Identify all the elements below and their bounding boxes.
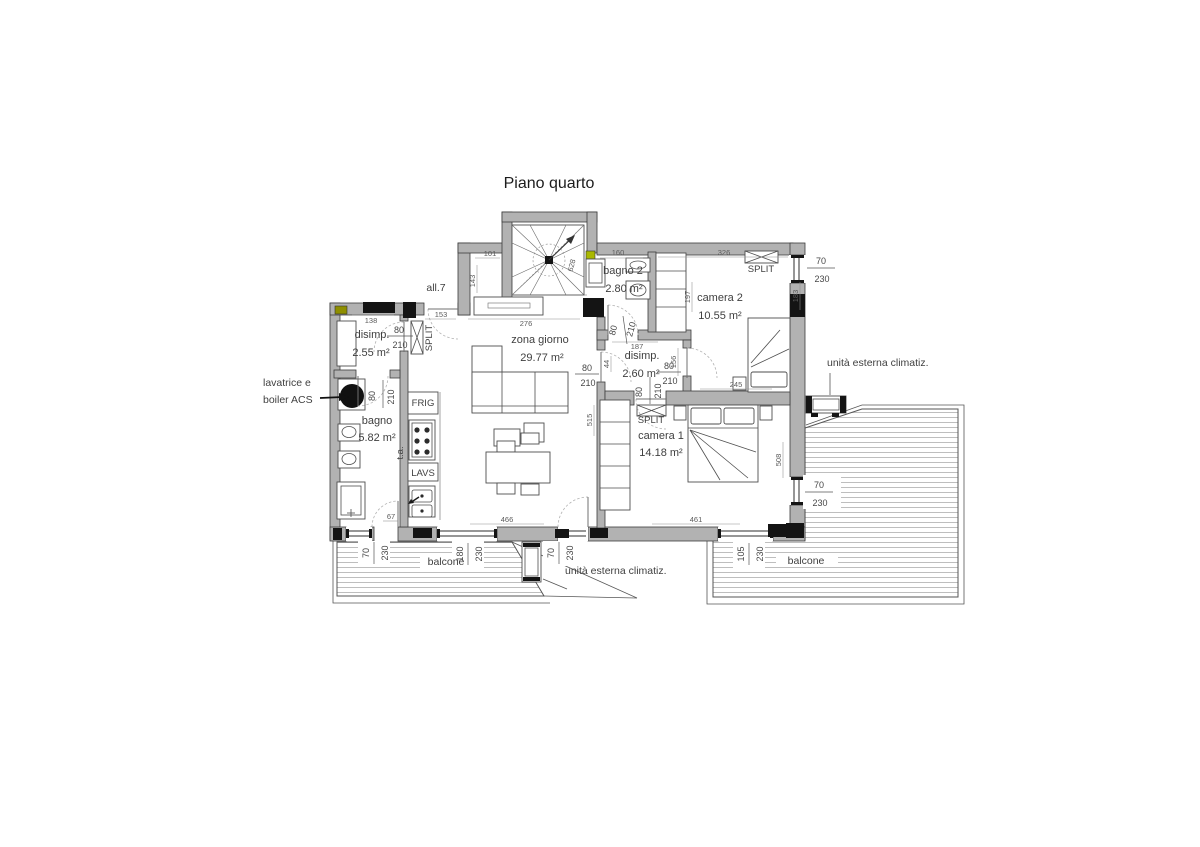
- dim-160: 160: [612, 248, 625, 257]
- single-bed: [748, 318, 790, 392]
- svg-text:180: 180: [455, 546, 465, 561]
- svg-text:70: 70: [816, 256, 826, 266]
- dim-183: 183: [791, 290, 800, 303]
- door-dim-disimp1: 80 210: [387, 325, 413, 350]
- svg-text:210: 210: [386, 389, 396, 404]
- room-area-bagno2: 2.80 m²: [605, 283, 643, 295]
- dim-508: 508: [774, 454, 783, 467]
- wc: [338, 424, 360, 441]
- svg-text:230: 230: [812, 498, 827, 508]
- window-dim-camera2-est: 70 230: [807, 256, 835, 284]
- ac-outdoor-unit-bottom: [522, 542, 541, 582]
- door-dim-corridoio: 80 210: [575, 363, 599, 388]
- label-frig: FRIG: [412, 398, 435, 409]
- label-split-camera1: SPLIT: [638, 415, 665, 426]
- dim-245: 245: [730, 380, 743, 389]
- room-area-zona-giorno: 29.77 m²: [520, 352, 564, 364]
- room-area-disimp2: 2.60 m²: [622, 368, 660, 380]
- svg-text:210: 210: [653, 383, 663, 398]
- svg-text:230: 230: [755, 546, 765, 561]
- svg-text:210: 210: [662, 376, 677, 386]
- cabinet: [337, 321, 356, 366]
- dim-466: 466: [501, 515, 514, 524]
- dim-138: 138: [365, 316, 378, 325]
- dim-515: 515: [585, 414, 594, 427]
- nightstand: [674, 406, 686, 420]
- shower: [337, 482, 365, 519]
- label-split-camera2: SPLIT: [748, 264, 775, 275]
- room-name-camera2: camera 2: [697, 292, 743, 304]
- room-name-bagno2: bagno 2: [603, 265, 643, 277]
- svg-text:80: 80: [394, 325, 404, 335]
- svg-text:210: 210: [392, 340, 407, 350]
- room-name-camera1: camera 1: [638, 430, 684, 442]
- stove: [409, 420, 435, 460]
- svg-text:230: 230: [380, 545, 390, 560]
- dim-67: 67: [387, 512, 395, 521]
- svg-text:105: 105: [736, 546, 746, 561]
- svg-text:80: 80: [634, 387, 644, 397]
- svg-text:70: 70: [814, 480, 824, 490]
- dim-101: 101: [484, 249, 497, 258]
- door-dim-bagno2: 80 210: [607, 316, 638, 344]
- room-area-camera2: 10.55 m²: [698, 310, 742, 322]
- svg-text:80: 80: [582, 363, 592, 373]
- split-unit-soggiorno: [411, 321, 423, 354]
- label-unita-esterna-bottom: unità esterna climatiz.: [565, 565, 667, 577]
- svg-text:80: 80: [607, 324, 619, 336]
- dim-44: 44: [602, 360, 611, 368]
- dim-143: 143: [468, 275, 477, 288]
- svg-text:70: 70: [546, 548, 556, 558]
- svg-text:210: 210: [580, 378, 595, 388]
- svg-text:230: 230: [565, 545, 575, 560]
- room-area-camera1: 14.18 m²: [639, 447, 683, 459]
- svg-text:70: 70: [361, 548, 371, 558]
- label-all7: all.7: [426, 282, 445, 294]
- dim-197: 197: [683, 291, 692, 304]
- dim-461: 461: [690, 515, 703, 524]
- page-title: Piano quarto: [504, 175, 595, 192]
- svg-text:230: 230: [474, 546, 484, 561]
- marker-yellow-stair: [586, 251, 595, 259]
- label-unita-esterna-right: unità esterna climatiz.: [827, 357, 929, 369]
- door-balcone-soggiorno: [558, 497, 588, 527]
- kitchen-sink: [408, 486, 435, 517]
- svg-text:210: 210: [624, 321, 638, 338]
- dim-153: 153: [435, 310, 448, 319]
- window-camera2-est: [789, 255, 806, 283]
- label-lavatrice-1: lavatrice e: [263, 377, 311, 389]
- label-balcone-right: balcone: [788, 555, 825, 567]
- floor-plan-sheet: Piano quarto disimp. 2.55 m² bagno 5.82 …: [0, 0, 1200, 847]
- room-area-bagno: 5.82 m²: [358, 432, 396, 444]
- dim-187: 187: [631, 342, 644, 351]
- room-name-disimp1: disimp.: [355, 329, 390, 341]
- window-cucina: [437, 527, 497, 541]
- label-ta: t.a.: [395, 446, 406, 459]
- window-bagno: [346, 527, 372, 541]
- dim-156: 156: [669, 356, 678, 369]
- door-camera2: [687, 348, 717, 378]
- floor-plan-drawing: Piano quarto disimp. 2.55 m² bagno 5.82 …: [0, 0, 1200, 847]
- label-split-soggiorno: SPLIT: [424, 325, 435, 352]
- room-name-bagno: bagno: [362, 415, 393, 427]
- double-bed: [688, 405, 758, 482]
- camera1-furniture: [600, 400, 772, 510]
- svg-text:80: 80: [367, 391, 377, 401]
- ac-outdoor-unit-right: [806, 396, 846, 417]
- room-name-disimp2: disimp.: [625, 350, 660, 362]
- svg-text:230: 230: [814, 274, 829, 284]
- marker-yellow-left: [335, 306, 347, 314]
- room-area-disimp1: 2.55 m²: [352, 347, 390, 359]
- window-camera1-sud: [718, 527, 773, 541]
- nightstand: [760, 406, 772, 420]
- label-lavatrice-2: boiler ACS: [263, 394, 313, 406]
- kitchen: [408, 392, 440, 520]
- room-name-zona-giorno: zona giorno: [511, 334, 569, 346]
- dim-326: 326: [718, 248, 731, 257]
- wardrobe1: [600, 400, 630, 510]
- door-dim-camera1: 80 210: [634, 377, 663, 404]
- dim-276: 276: [520, 319, 533, 328]
- bidet: [338, 451, 360, 468]
- label-lavs: LAVS: [411, 468, 435, 479]
- wardrobe2: [656, 253, 686, 332]
